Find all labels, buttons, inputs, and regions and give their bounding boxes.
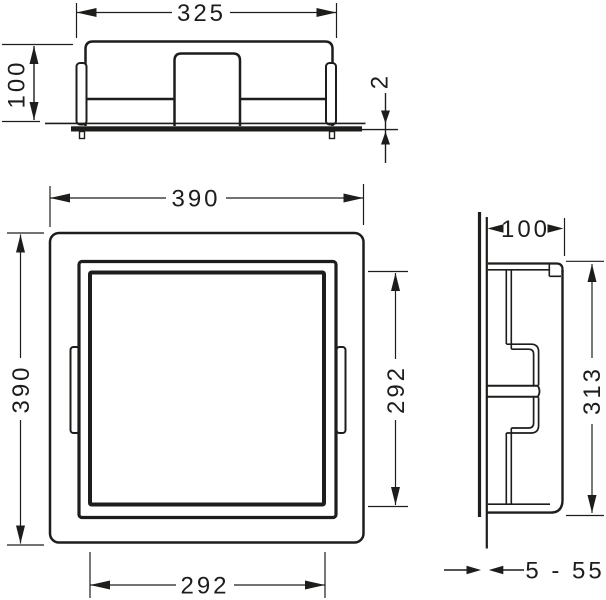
side-view-bottom-edge xyxy=(487,502,563,513)
dimension-label-2: 2 xyxy=(367,73,394,89)
dimension-side-height: 313 xyxy=(566,261,606,515)
top-view-flange-plate xyxy=(71,126,362,131)
top-view: 325 100 2 xyxy=(2,0,398,163)
dimension-top-width: 325 xyxy=(77,0,337,38)
arrowhead-right xyxy=(467,566,482,574)
dimension-inner-width: 292 xyxy=(90,552,325,600)
clip-upper-hook-inner xyxy=(511,349,533,385)
arrowhead-up xyxy=(381,132,390,145)
arrowhead-right xyxy=(305,581,325,590)
arrowhead-right xyxy=(344,194,364,203)
side-view-mounting-clip xyxy=(487,271,540,505)
dimension-flange-offset: 2 xyxy=(362,73,398,163)
dimension-label-292-height: 292 xyxy=(383,365,410,414)
arrowhead-left xyxy=(77,8,97,17)
dimension-drawing: 325 100 2 xyxy=(0,0,606,600)
dimension-label-100: 100 xyxy=(4,59,31,108)
arrowhead-down xyxy=(588,495,597,513)
technical-drawing-page: 325 100 2 xyxy=(0,0,606,600)
arrowhead-left xyxy=(489,566,504,574)
dimension-front-width: 390 xyxy=(50,184,364,227)
arrowhead-up xyxy=(30,46,39,64)
dimension-label-390-height: 390 xyxy=(8,364,35,413)
front-view-right-clip-tab xyxy=(337,347,346,433)
dimension-install-range: 5 - 55 xyxy=(444,558,605,585)
top-view-left-anchor-clip xyxy=(77,63,87,125)
arrowhead-down xyxy=(381,111,390,124)
top-view-center-stub xyxy=(175,54,241,127)
top-view-right-clip-leg xyxy=(330,132,335,139)
clip-lower-hook-inner xyxy=(511,397,533,428)
dimension-label-5-55: 5 - 55 xyxy=(525,558,604,585)
arrowhead-up xyxy=(16,235,25,253)
dimension-label-100-depth: 100 xyxy=(501,216,550,243)
side-view-rear-lip xyxy=(549,264,561,277)
arrowhead-left xyxy=(90,581,110,590)
arrowhead-left xyxy=(50,194,70,203)
arrowhead-up xyxy=(588,264,597,282)
top-view-right-anchor-clip xyxy=(326,63,336,125)
dimension-label-313: 313 xyxy=(579,366,606,415)
dimension-label-292-width: 292 xyxy=(180,573,229,600)
dimension-side-depth: 100 xyxy=(488,216,565,256)
side-view-top-rear-corner xyxy=(550,264,563,273)
side-view: 100 313 5 - 55 xyxy=(444,212,606,585)
arrowhead-up xyxy=(391,273,400,291)
dimension-front-height: 390 xyxy=(7,233,44,545)
dimension-top-depth: 100 xyxy=(2,45,73,122)
arrowhead-down xyxy=(391,487,400,505)
arrowhead-down xyxy=(16,526,25,544)
dimension-label-390-width: 390 xyxy=(171,186,220,213)
dimension-inner-height: 292 xyxy=(368,272,410,507)
front-view-flange-outline xyxy=(50,233,364,543)
arrowhead-down xyxy=(30,102,39,120)
front-view: 390 390 292 xyxy=(7,184,410,600)
clip-tongue-end-cap xyxy=(537,385,539,398)
arrowhead-right xyxy=(317,8,337,17)
top-view-left-clip-leg xyxy=(80,132,85,139)
dimension-label-325: 325 xyxy=(177,0,226,27)
